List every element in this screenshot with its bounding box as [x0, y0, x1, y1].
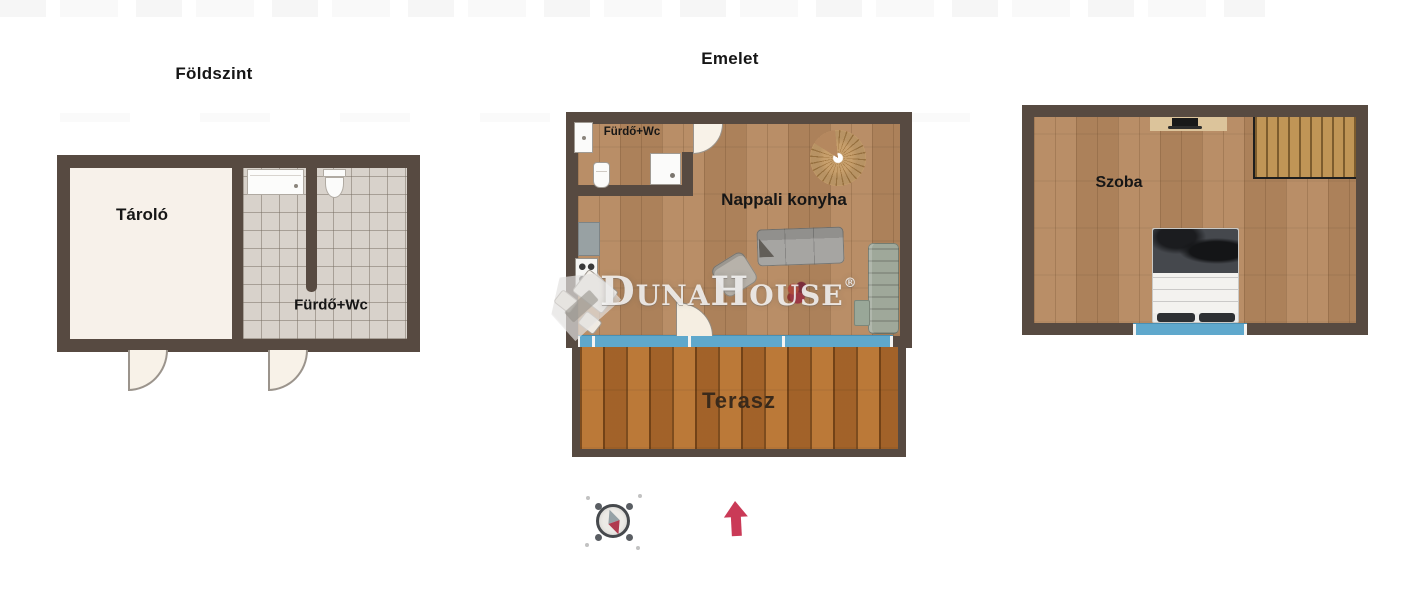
toilet-tank — [323, 169, 346, 177]
north-arrow-icon — [723, 500, 749, 538]
terrace-label: Terasz — [702, 388, 776, 414]
bedroom-label: Szoba — [1095, 174, 1142, 192]
compass-icon — [594, 502, 634, 542]
attic-floor-plan: Szoba — [1022, 105, 1368, 335]
upper-floor-title: Emelet — [640, 49, 820, 69]
sink — [574, 122, 593, 153]
ground-floor-plan: Tároló Fürdő+Wc — [57, 155, 420, 352]
bed — [1152, 228, 1239, 323]
door-arc — [128, 350, 168, 391]
terrace: Terasz — [572, 347, 906, 457]
spiral-staircase — [810, 130, 866, 186]
kitchen-counter — [578, 222, 600, 256]
faint-watermark-band — [0, 0, 1265, 17]
sink — [247, 169, 304, 195]
door-arc — [268, 350, 308, 391]
storage-room-label: Tároló — [116, 205, 168, 225]
registered-mark: ® — [844, 276, 857, 291]
toilet — [593, 162, 610, 188]
bathroom-partition-wall — [306, 168, 317, 292]
storage-room — [70, 168, 232, 339]
floor-plan-canvas: Földszint Emelet Tároló Fürdő+Wc Fürdő+W… — [0, 0, 1406, 600]
watermark-text: DunaHouse® — [600, 272, 857, 312]
ground-floor-title: Földszint — [124, 64, 304, 84]
side-sofa — [868, 243, 899, 334]
living-kitchen-label: Nappali konyha — [721, 190, 847, 210]
shower — [650, 153, 681, 185]
window — [1133, 323, 1247, 335]
upper-bathroom-label: Fürdő+Wc — [604, 126, 661, 138]
ground-bathroom-label: Fürdő+Wc — [294, 297, 368, 314]
staircase — [1253, 117, 1356, 179]
watermark-brand: DunaHouse — [600, 268, 844, 315]
tv — [1172, 118, 1198, 126]
sofa — [756, 226, 844, 266]
tv-stand — [1168, 126, 1202, 129]
